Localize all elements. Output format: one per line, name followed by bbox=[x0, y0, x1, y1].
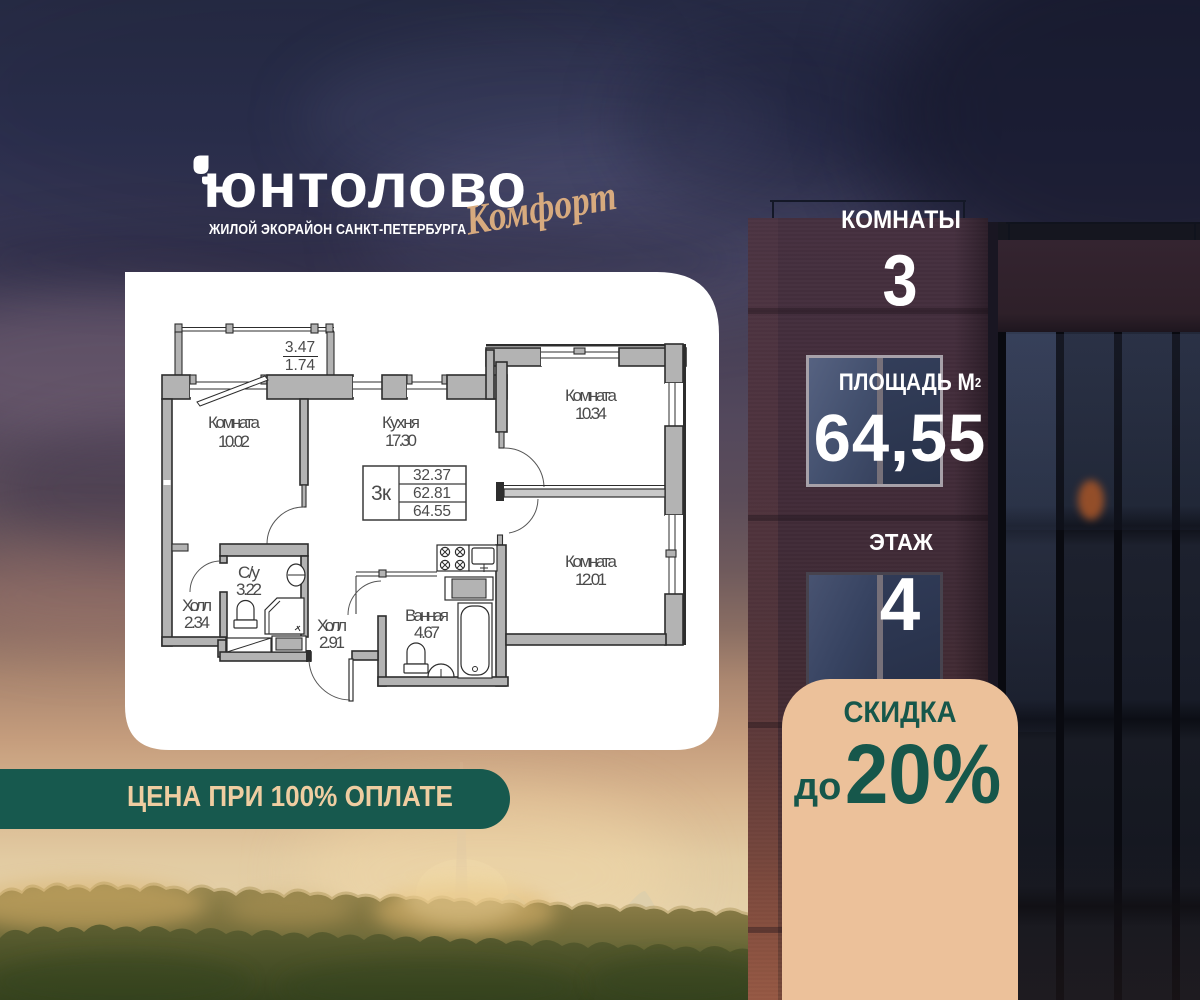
svg-text:10.34: 10.34 bbox=[575, 404, 607, 423]
svg-text:Кухня: Кухня bbox=[382, 413, 420, 432]
svg-text:3к: 3к bbox=[371, 482, 392, 505]
svg-text:Комната: Комната bbox=[565, 552, 618, 571]
svg-text:12.01: 12.01 bbox=[575, 570, 607, 589]
svg-text:2.34: 2.34 bbox=[184, 613, 210, 632]
svg-text:62.81: 62.81 bbox=[413, 485, 451, 502]
svg-text:17.30: 17.30 bbox=[385, 431, 417, 450]
svg-text:10.02: 10.02 bbox=[218, 432, 250, 451]
svg-text:1.74: 1.74 bbox=[285, 357, 316, 374]
svg-text:3.47: 3.47 bbox=[285, 339, 315, 356]
svg-text:4.67: 4.67 bbox=[414, 623, 440, 642]
svg-text:2.91: 2.91 bbox=[319, 633, 345, 652]
svg-text:Комната: Комната bbox=[565, 386, 618, 405]
svg-text:32.37: 32.37 bbox=[413, 467, 451, 484]
svg-text:3.22: 3.22 bbox=[236, 580, 262, 599]
svg-text:64.55: 64.55 bbox=[413, 503, 451, 520]
svg-text:Комната: Комната bbox=[208, 413, 261, 432]
